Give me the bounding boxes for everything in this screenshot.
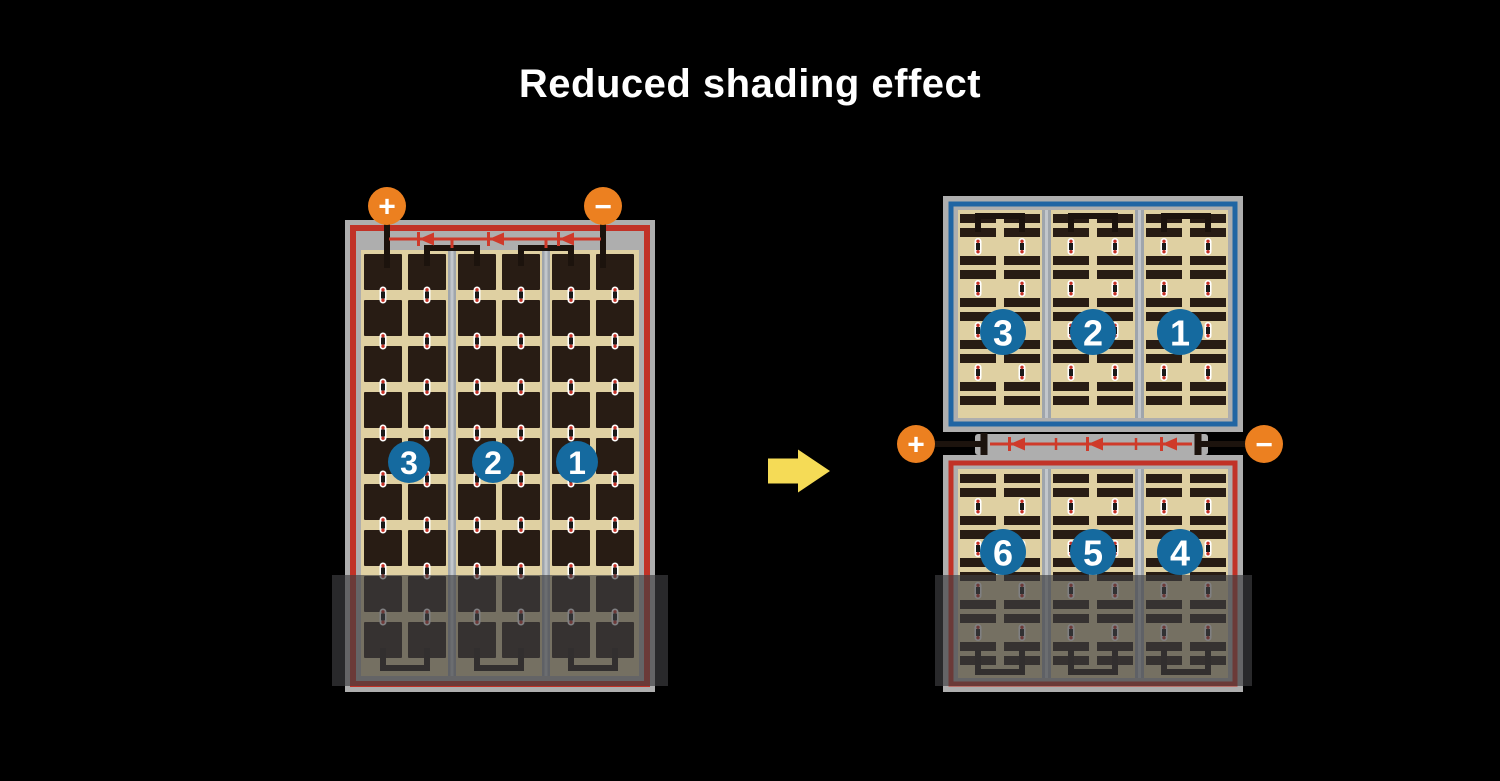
junction-bus	[933, 433, 1247, 455]
stage: Reduced shading effect +−321321654+−	[0, 0, 1500, 781]
string-badge: 2	[472, 441, 514, 483]
string-badge-label: 3	[993, 313, 1013, 354]
terminal-symbol: −	[594, 191, 612, 224]
string-badge: 4	[1157, 529, 1203, 575]
right-top-half: 321	[943, 196, 1243, 432]
transform-arrow-icon	[768, 450, 830, 493]
string-badge-label: 6	[993, 533, 1013, 574]
string-badge: 1	[1157, 309, 1203, 355]
string-badge-label: 2	[484, 445, 502, 481]
string-badge: 5	[1070, 529, 1116, 575]
string-badge: 3	[388, 441, 430, 483]
string-badge-label: 4	[1170, 533, 1190, 574]
string-badge-label: 2	[1083, 313, 1103, 354]
minus-terminal-icon: −	[584, 187, 622, 225]
terminal-symbol: +	[378, 191, 396, 224]
minus-terminal-icon: −	[1245, 425, 1283, 463]
string-badge: 1	[556, 441, 598, 483]
shading-overlay	[935, 575, 1252, 686]
shading-diagram: +−321321654+−	[0, 0, 1500, 781]
terminal-symbol: −	[1255, 429, 1273, 462]
right-module: 321654+−	[897, 196, 1283, 692]
plus-terminal-icon: +	[368, 187, 406, 225]
string-badge: 3	[980, 309, 1026, 355]
string-badge-label: 1	[568, 445, 586, 481]
string-badge-label: 3	[400, 445, 418, 481]
left-module: +−321	[332, 187, 668, 692]
string-badge-label: 5	[1083, 533, 1103, 574]
terminal-symbol: +	[907, 429, 925, 462]
shading-overlay	[332, 575, 668, 686]
plus-terminal-icon: +	[897, 425, 935, 463]
string-badge: 2	[1070, 309, 1116, 355]
string-badge-label: 1	[1170, 313, 1190, 354]
string-badge: 6	[980, 529, 1026, 575]
